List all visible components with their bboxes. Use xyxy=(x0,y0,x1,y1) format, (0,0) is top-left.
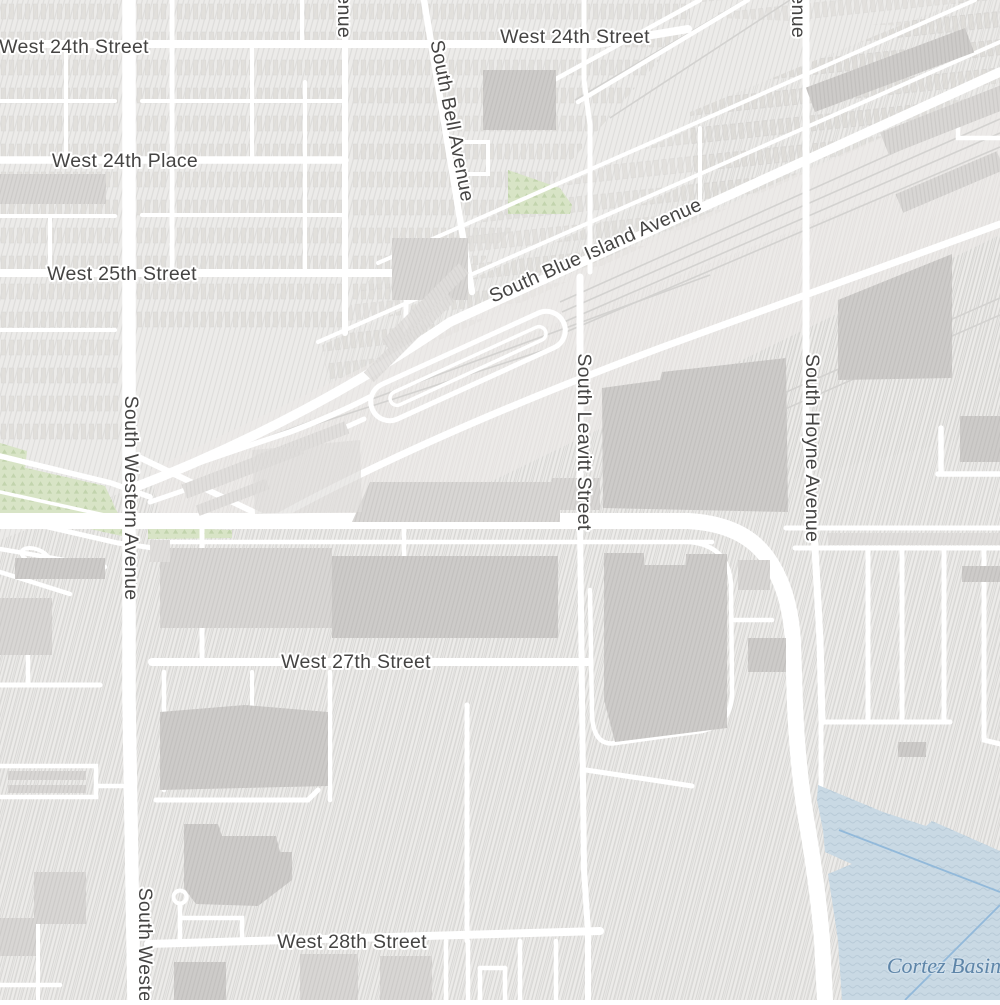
svg-text:West 25th Street: West 25th Street xyxy=(47,263,197,285)
svg-text:Cortez Basin: Cortez Basin xyxy=(887,953,1000,978)
svg-text:South Western Avenue: South Western Avenue xyxy=(134,888,156,1000)
svg-text:West 24th Place: West 24th Place xyxy=(52,150,198,172)
svg-text:South Hoyne Avenue: South Hoyne Avenue xyxy=(787,0,809,38)
svg-text:West 24th Street: West 24th Street xyxy=(500,26,650,48)
svg-text:West 28th Street: West 28th Street xyxy=(277,931,427,953)
svg-text:South Leavitt Street: South Leavitt Street xyxy=(573,353,595,531)
svg-text:South Hoyne Avenue: South Hoyne Avenue xyxy=(801,354,823,542)
svg-text:South Western Avenue: South Western Avenue xyxy=(120,396,142,601)
svg-text:West 27th Street: West 27th Street xyxy=(281,651,431,673)
svg-text:South Oakley Avenue: South Oakley Avenue xyxy=(333,0,355,38)
svg-text:West 24th Street: West 24th Street xyxy=(0,36,149,58)
